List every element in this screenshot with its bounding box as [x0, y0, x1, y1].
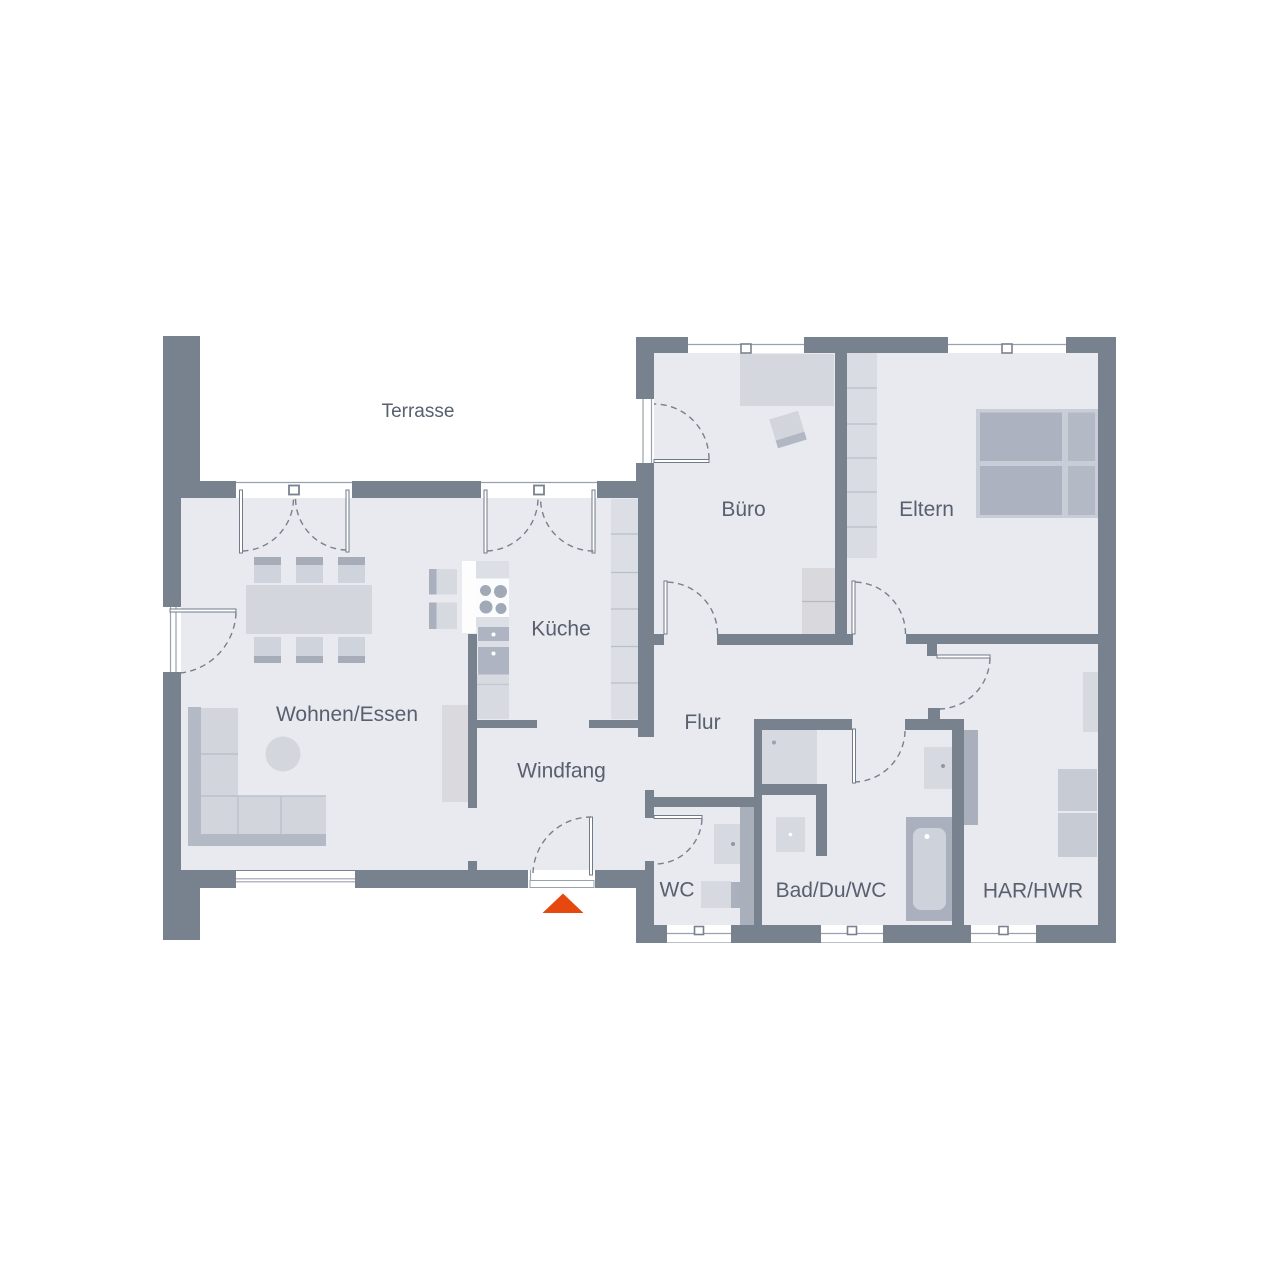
- svg-text:Terrasse: Terrasse: [382, 401, 455, 422]
- svg-text:Büro: Büro: [721, 498, 765, 521]
- svg-text:Flur: Flur: [684, 711, 720, 734]
- svg-text:Windfang: Windfang: [517, 760, 606, 783]
- svg-text:Wohnen/Essen: Wohnen/Essen: [276, 703, 418, 726]
- svg-text:Küche: Küche: [531, 618, 591, 641]
- svg-text:HAR/HWR: HAR/HWR: [983, 880, 1083, 903]
- svg-text:Eltern: Eltern: [899, 498, 954, 521]
- svg-text:Bad/Du/WC: Bad/Du/WC: [776, 879, 887, 902]
- svg-text:WC: WC: [660, 879, 695, 902]
